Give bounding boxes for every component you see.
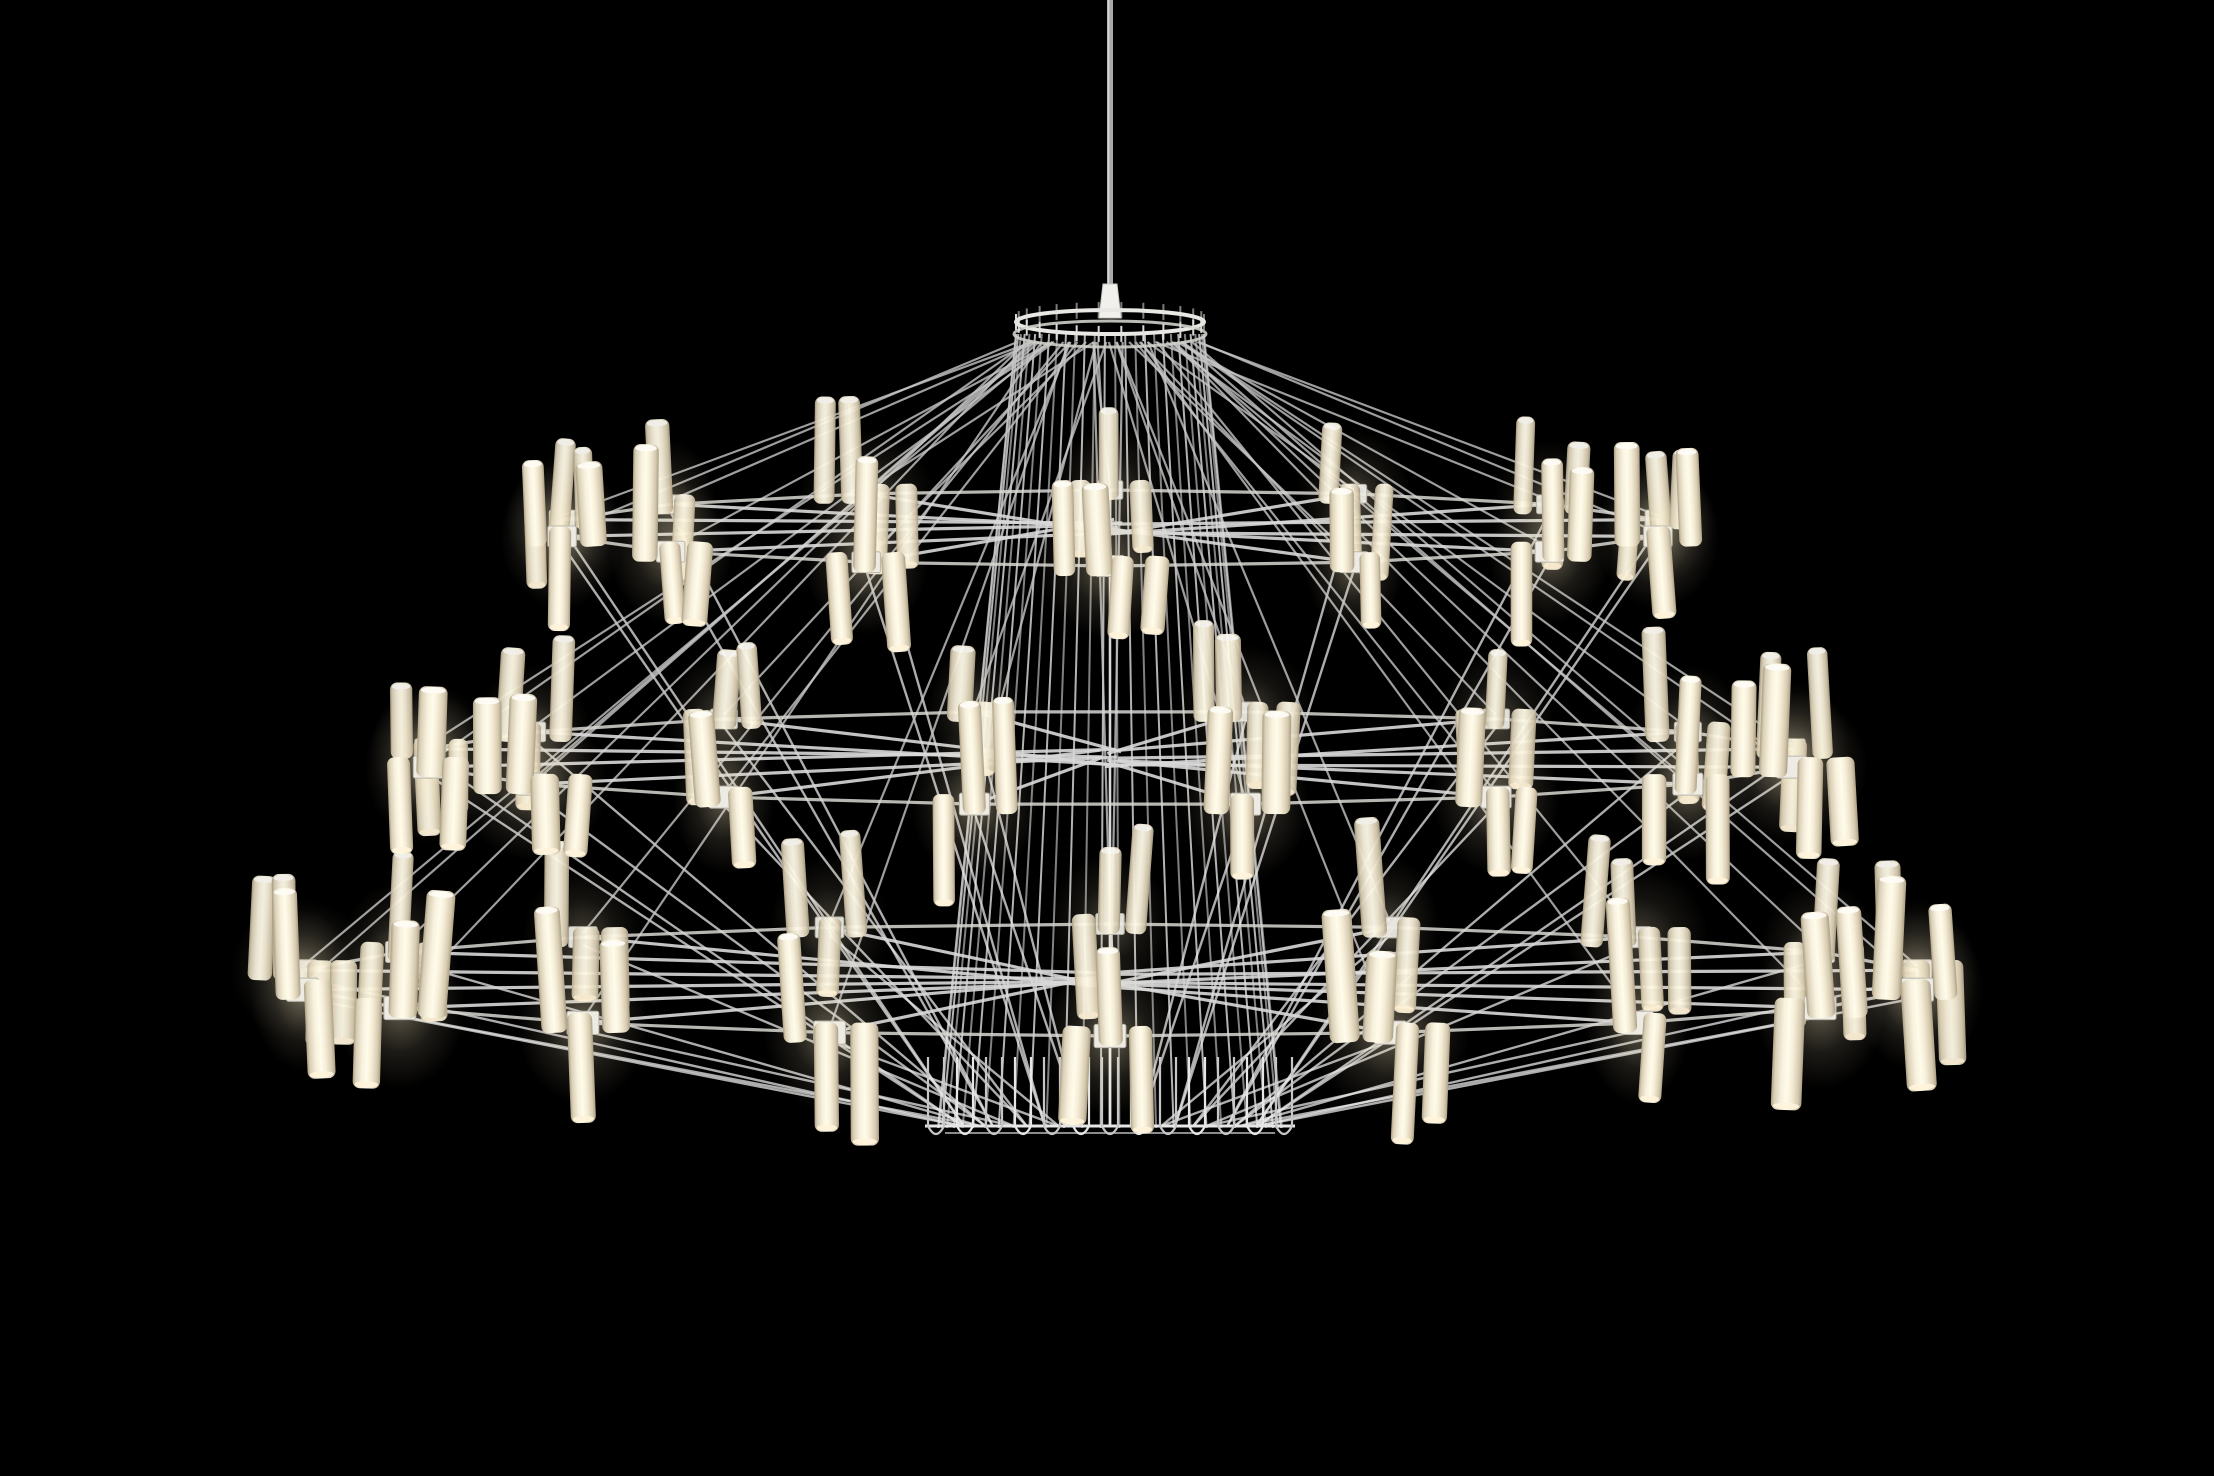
led-tube-up [1329, 488, 1354, 573]
led-tube-down [530, 774, 561, 855]
led-tube-down [304, 979, 336, 1079]
led-tube-up [1614, 442, 1640, 547]
led-tube-down [1421, 1022, 1450, 1124]
led-tube-down [1359, 552, 1381, 629]
led-tube-up [1455, 707, 1486, 808]
led-tube-up [1541, 458, 1564, 562]
led-tube-down [387, 757, 414, 855]
led-tube-down [1486, 787, 1511, 877]
led-tube-down [1706, 774, 1730, 884]
led-tube-up [814, 396, 836, 504]
led-tube-down [1511, 542, 1533, 647]
led-tube-up [522, 460, 548, 547]
led-tube-up [1362, 950, 1397, 1043]
led-tube-up [1261, 710, 1291, 814]
led-tube-up [473, 697, 502, 794]
led-tube-up [1081, 482, 1113, 576]
led-tube-down [1058, 1025, 1091, 1125]
led-tube-down [814, 1023, 839, 1132]
led-tube-down [1230, 794, 1254, 880]
led-tube-up [1485, 649, 1508, 730]
led-tube-up [1675, 448, 1702, 547]
led-tube-down [1826, 756, 1859, 846]
led-tube-down [850, 1023, 879, 1146]
led-tube-down [1642, 774, 1667, 865]
led-tube-up [575, 461, 607, 548]
led-tube-down [1771, 997, 1806, 1110]
led-tube-up [1096, 947, 1123, 1047]
chandelier-photo [0, 0, 2214, 1476]
led-tube-down [352, 998, 382, 1089]
led-tube-up [388, 920, 420, 1019]
led-tube-up [992, 697, 1018, 815]
led-tube-up [1193, 620, 1215, 722]
led-tube-up [1759, 663, 1792, 778]
cord-fitting [1099, 284, 1121, 318]
led-tube-up [599, 939, 630, 1033]
led-tube-down [548, 526, 572, 631]
led-tube-up [272, 887, 301, 1000]
led-tube-down [728, 786, 757, 869]
chandelier-svg [0, 0, 2214, 1476]
led-tube-up [1567, 467, 1595, 562]
led-tube-down [933, 794, 955, 906]
led-tube-up [632, 444, 659, 562]
led-tube-down [1129, 1026, 1154, 1134]
led-tube-up [1203, 706, 1233, 815]
led-tube-down [567, 1012, 596, 1123]
led-tube-up [1052, 480, 1076, 576]
led-tube-down [1796, 757, 1824, 859]
led-tube-up [853, 456, 878, 572]
led-tube-up [1097, 847, 1121, 934]
